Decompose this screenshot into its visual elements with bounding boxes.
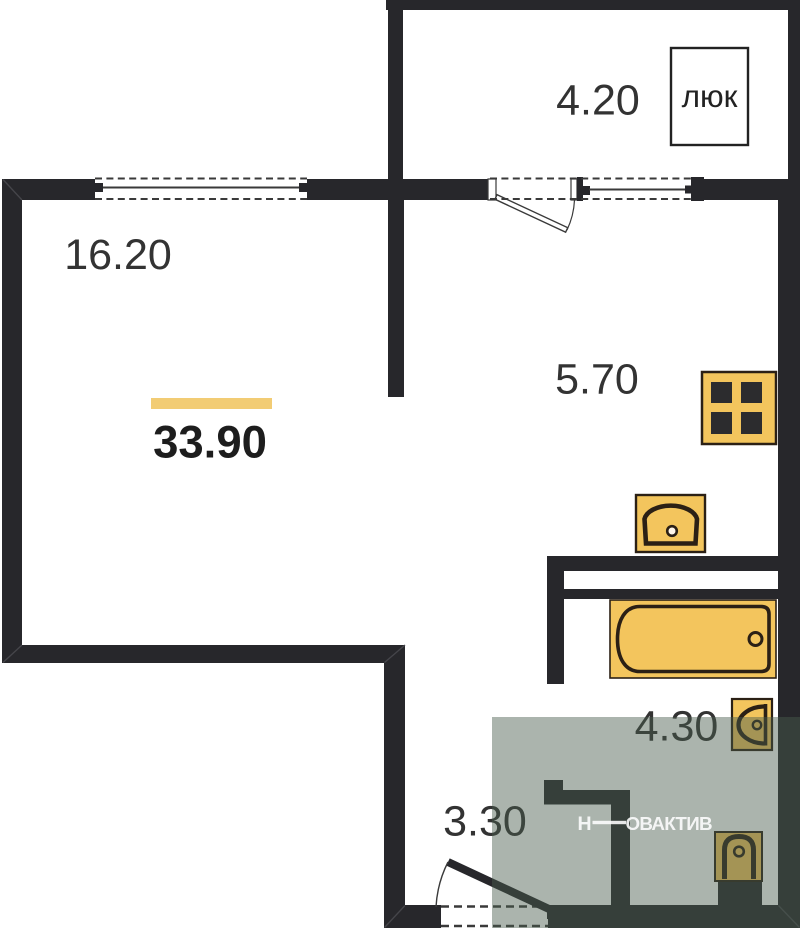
svg-text:33.90: 33.90 [153,417,267,468]
svg-text:Н: Н [578,813,592,835]
svg-text:5.70: 5.70 [555,356,639,404]
svg-text:16.20: 16.20 [64,231,172,279]
svg-text:4.20: 4.20 [556,77,640,125]
svg-text:люк: люк [682,78,738,114]
svg-text:ОВАКТИВ: ОВАКТИВ [626,813,713,834]
